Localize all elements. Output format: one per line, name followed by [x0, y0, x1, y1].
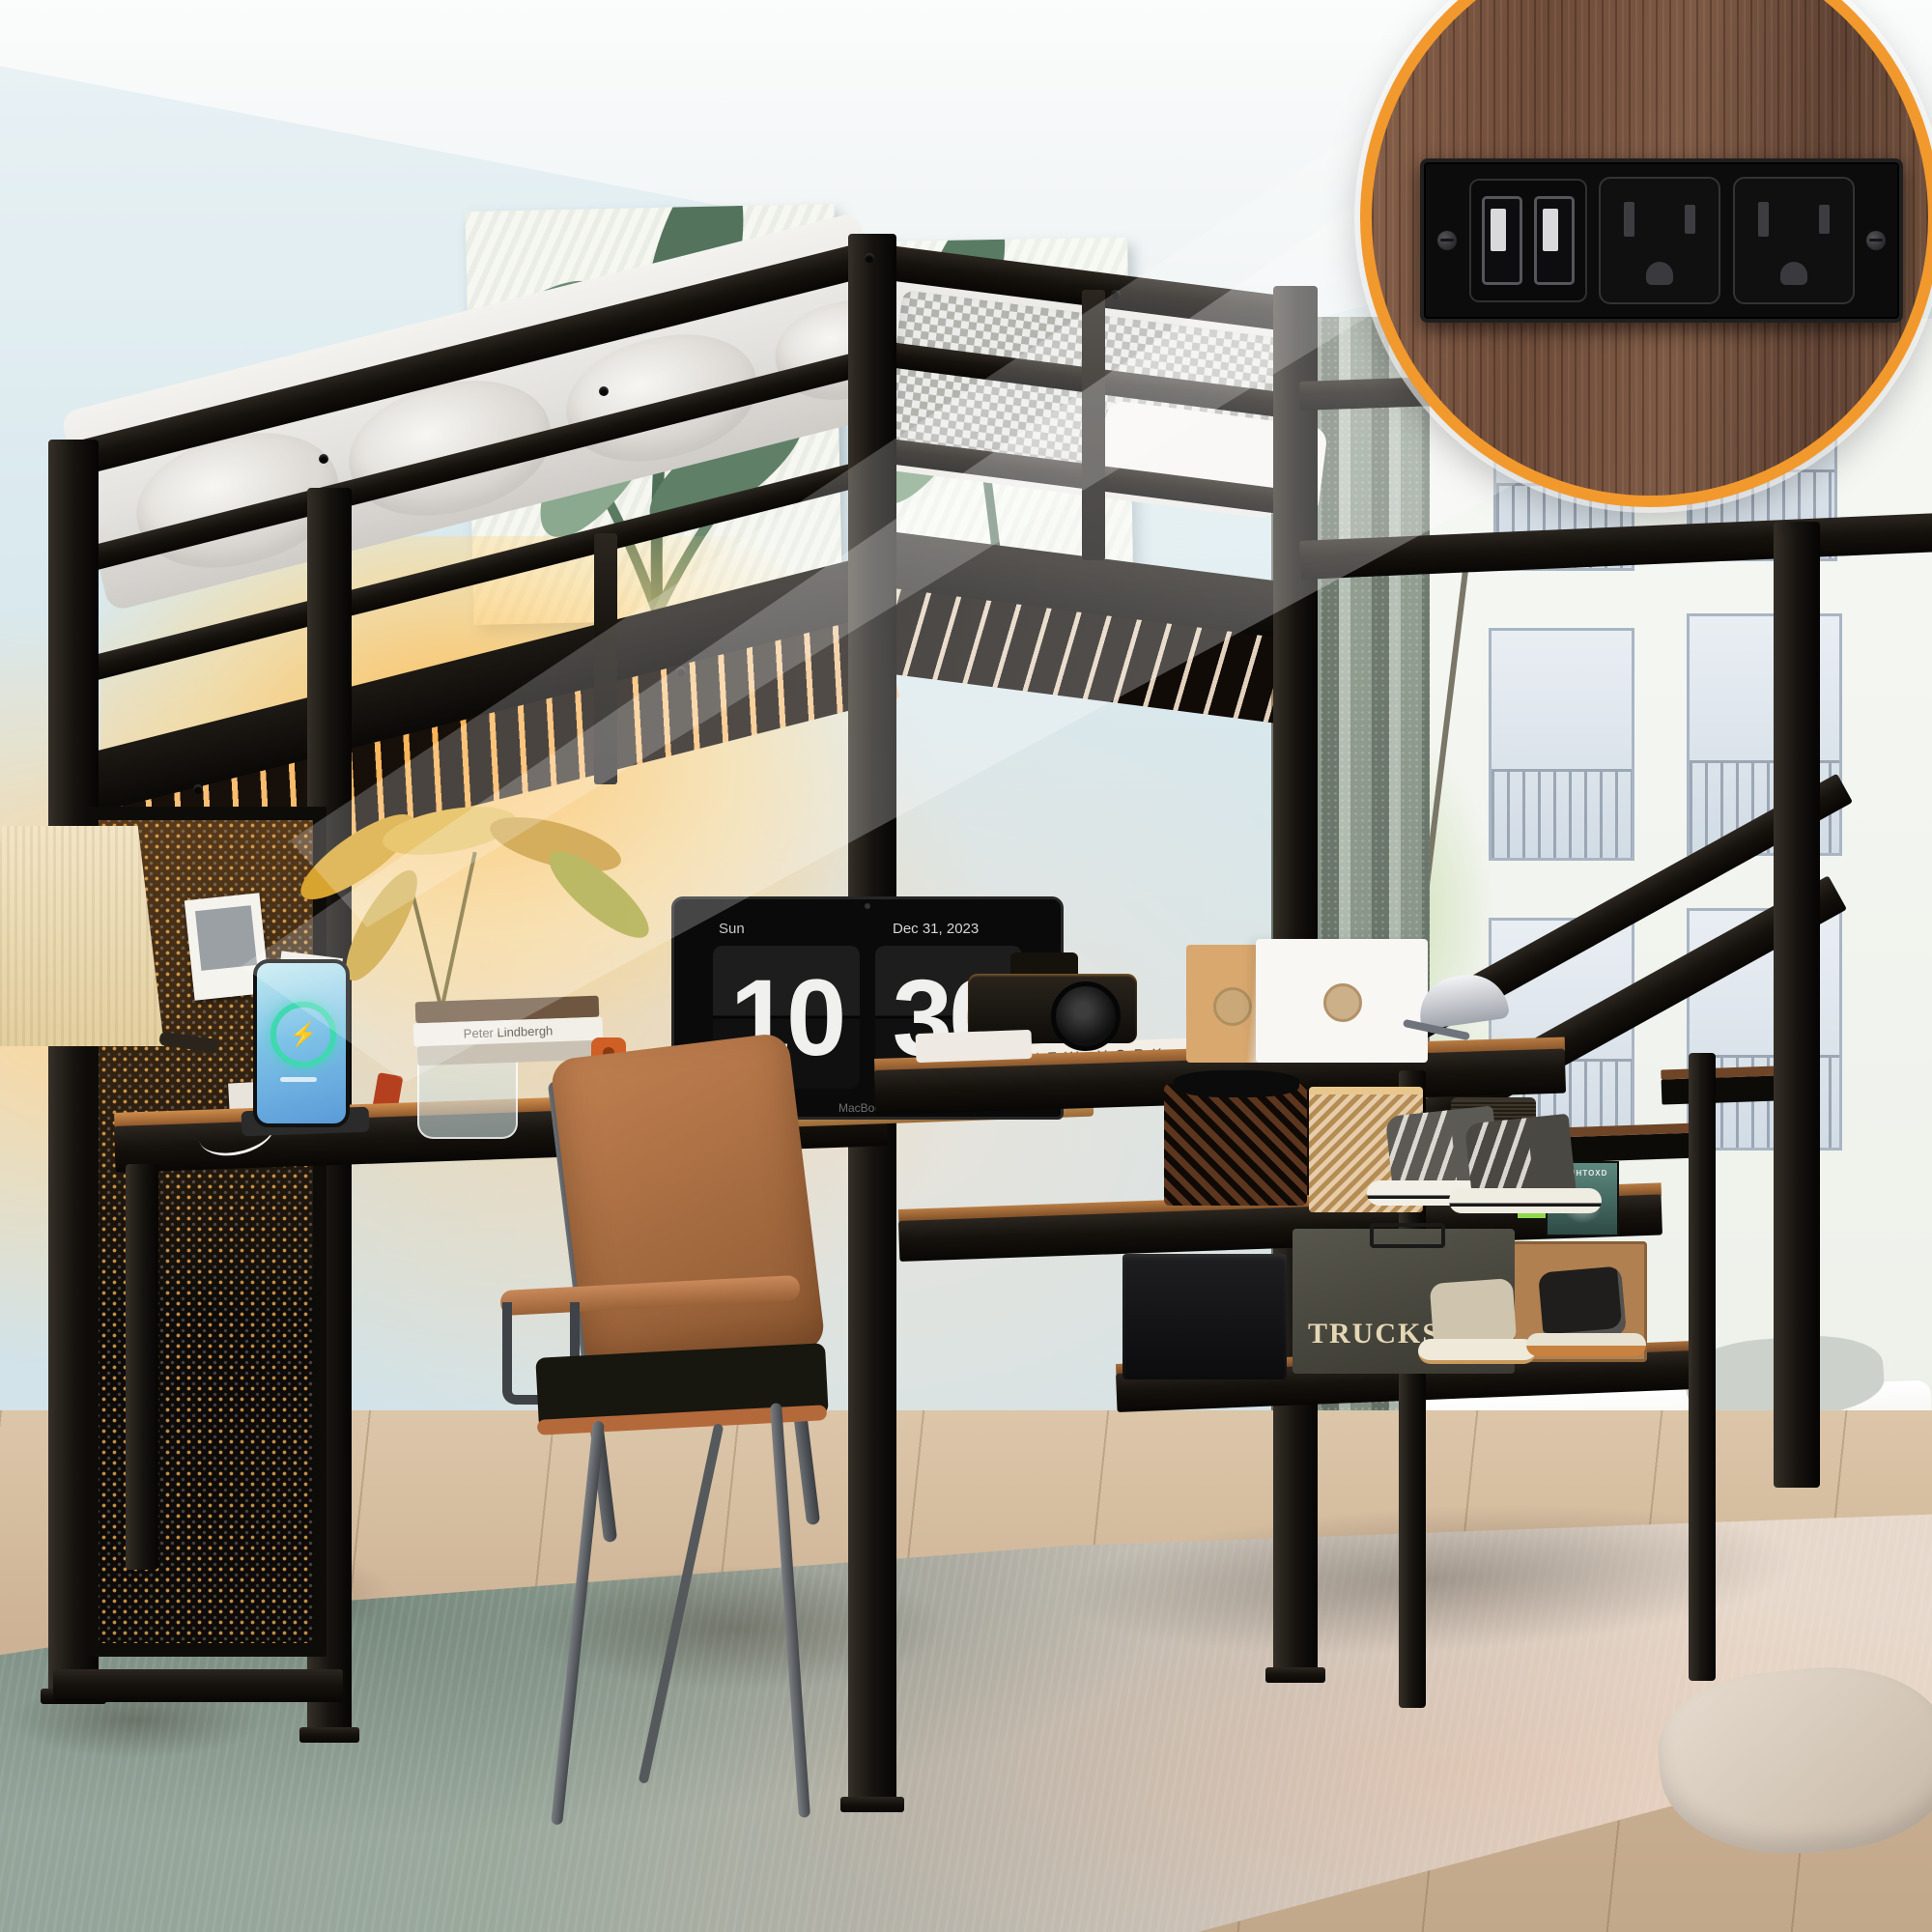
- box-handle: [1370, 1223, 1445, 1248]
- webcam-dot: [865, 903, 870, 909]
- sneaker-sole: [1526, 1333, 1646, 1356]
- camera-lens: [1051, 981, 1121, 1051]
- post-foot: [840, 1797, 904, 1812]
- ac-outlet-icon: [1599, 177, 1720, 304]
- clock-day: Sun: [719, 921, 745, 937]
- storage-box-lid: [916, 1030, 1033, 1063]
- sneaker-sole: [1449, 1188, 1602, 1213]
- ac-outlet-icon: [1733, 177, 1855, 304]
- bedroom-scene: ⚡ Peter Lindbergh Sun Dec 31, 2023 10 AM…: [0, 0, 1932, 1932]
- sneaker-sole: [1418, 1339, 1536, 1364]
- screw-icon: [1866, 231, 1886, 250]
- phone-text-line: [280, 1077, 317, 1082]
- usb-port-icon: [1534, 196, 1575, 285]
- floor-lamp-shade: [0, 826, 164, 1046]
- usb-port-icon: [1482, 196, 1522, 285]
- frame-crossbar: [53, 1669, 343, 1702]
- stair-post: [1774, 522, 1820, 1488]
- clock-date: Dec 31, 2023: [893, 921, 979, 937]
- screw-icon: [1437, 231, 1457, 250]
- black-sneaker: [1538, 1265, 1627, 1342]
- power-strip-panel: [1420, 158, 1903, 323]
- usb-module: [1469, 179, 1587, 302]
- shelf-post: [1689, 1053, 1716, 1681]
- wicker-basket-dark: [1164, 1084, 1307, 1206]
- fabric-bin-black: [1122, 1254, 1287, 1379]
- kraft-label: [1323, 983, 1362, 1022]
- kraft-label: [1213, 987, 1252, 1026]
- post-foot: [299, 1727, 359, 1743]
- charging-bolt-icon: ⚡: [289, 1021, 318, 1049]
- stair-tread: [1555, 1132, 1701, 1162]
- basket-liner: [1174, 1070, 1299, 1097]
- chair-backrest: [550, 1032, 826, 1378]
- desk-leg: [126, 1164, 158, 1570]
- white-storage-box: [1256, 939, 1428, 1063]
- post-foot: [1265, 1667, 1325, 1683]
